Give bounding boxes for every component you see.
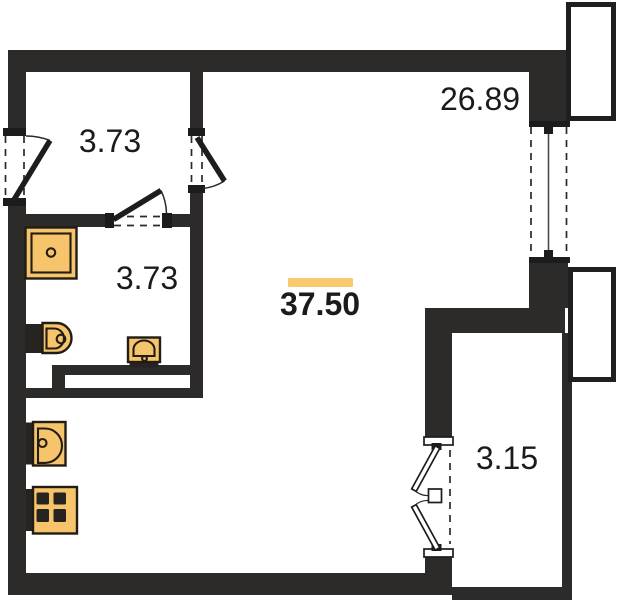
entrance-door-leaf: [14, 141, 51, 201]
hall-room-door: [188, 128, 225, 193]
bathroom-door-swing-arc: [161, 191, 167, 214]
neighbor-balcony-outline-lower: [571, 270, 614, 380]
area-label-balcony: 3.15: [476, 440, 538, 476]
bathroom-door-jamb-left: [105, 213, 114, 228]
wall-hall-divider-upper: [190, 72, 203, 128]
floor-plan-drawing: 3.73 3.73 26.89 37.50 3.15: [0, 0, 619, 600]
area-label-bathroom: 3.73: [116, 260, 178, 296]
wall-bathroom-top-right: [172, 214, 203, 227]
entrance-door-swing-arc: [26, 136, 50, 141]
neighbor-balcony-outline-upper: [569, 5, 614, 119]
balcony-french-door: [412, 437, 453, 557]
bathroom-sink-icon: [128, 338, 160, 368]
stove-icon: [26, 487, 77, 534]
wall-bathroom-top-left: [26, 214, 105, 227]
entrance-door: [3, 128, 50, 206]
area-label-hallway: 3.73: [79, 123, 141, 159]
entrance-door-jamb-top: [3, 128, 26, 136]
toilet-icon: [25, 323, 72, 353]
hall-room-door-jamb-top: [188, 128, 205, 136]
wall-left-lower: [8, 206, 26, 575]
window-anchor-top: [544, 127, 553, 134]
window: [529, 121, 570, 263]
bathroom-door-leaf: [114, 191, 162, 220]
wall-bottom: [8, 573, 452, 595]
balcony-door-leaf-bottom: [412, 505, 440, 550]
window-sill-top: [529, 121, 570, 127]
window-sill-bottom: [529, 257, 570, 263]
kitchen-sink-icon: [26, 422, 66, 466]
area-label-total: 37.50: [280, 286, 360, 322]
wall-bathroom-bottom-lower: [26, 388, 203, 398]
washing-machine-icon: [26, 228, 77, 279]
balcony-door-handle: [429, 489, 442, 503]
wall-top: [8, 50, 566, 72]
wall-right-above-window: [529, 72, 566, 126]
wall-balcony-left-stub: [425, 556, 452, 587]
floor-plan: 3.73 3.73 26.89 37.50 3.15: [0, 0, 619, 600]
hall-room-door-swing-arc: [203, 181, 225, 189]
wall-bathroom-bottom-upper: [52, 365, 203, 375]
bathroom-door: [105, 191, 172, 229]
wall-left-upper: [8, 50, 26, 128]
wall-right-below-window: [529, 263, 568, 308]
balcony-door-leaf-top: [412, 446, 440, 491]
wall-above-balcony: [425, 308, 565, 333]
hall-room-door-jamb-bottom: [188, 185, 205, 193]
wall-balcony-left: [425, 333, 452, 437]
window-anchor-bottom: [544, 250, 553, 257]
hall-room-door-leaf: [197, 138, 225, 182]
wall-balcony-bottom: [452, 587, 572, 600]
area-label-living-room: 26.89: [440, 81, 520, 117]
bathroom-door-jamb-right: [162, 213, 172, 228]
wall-hall-divider-mid: [190, 193, 203, 214]
